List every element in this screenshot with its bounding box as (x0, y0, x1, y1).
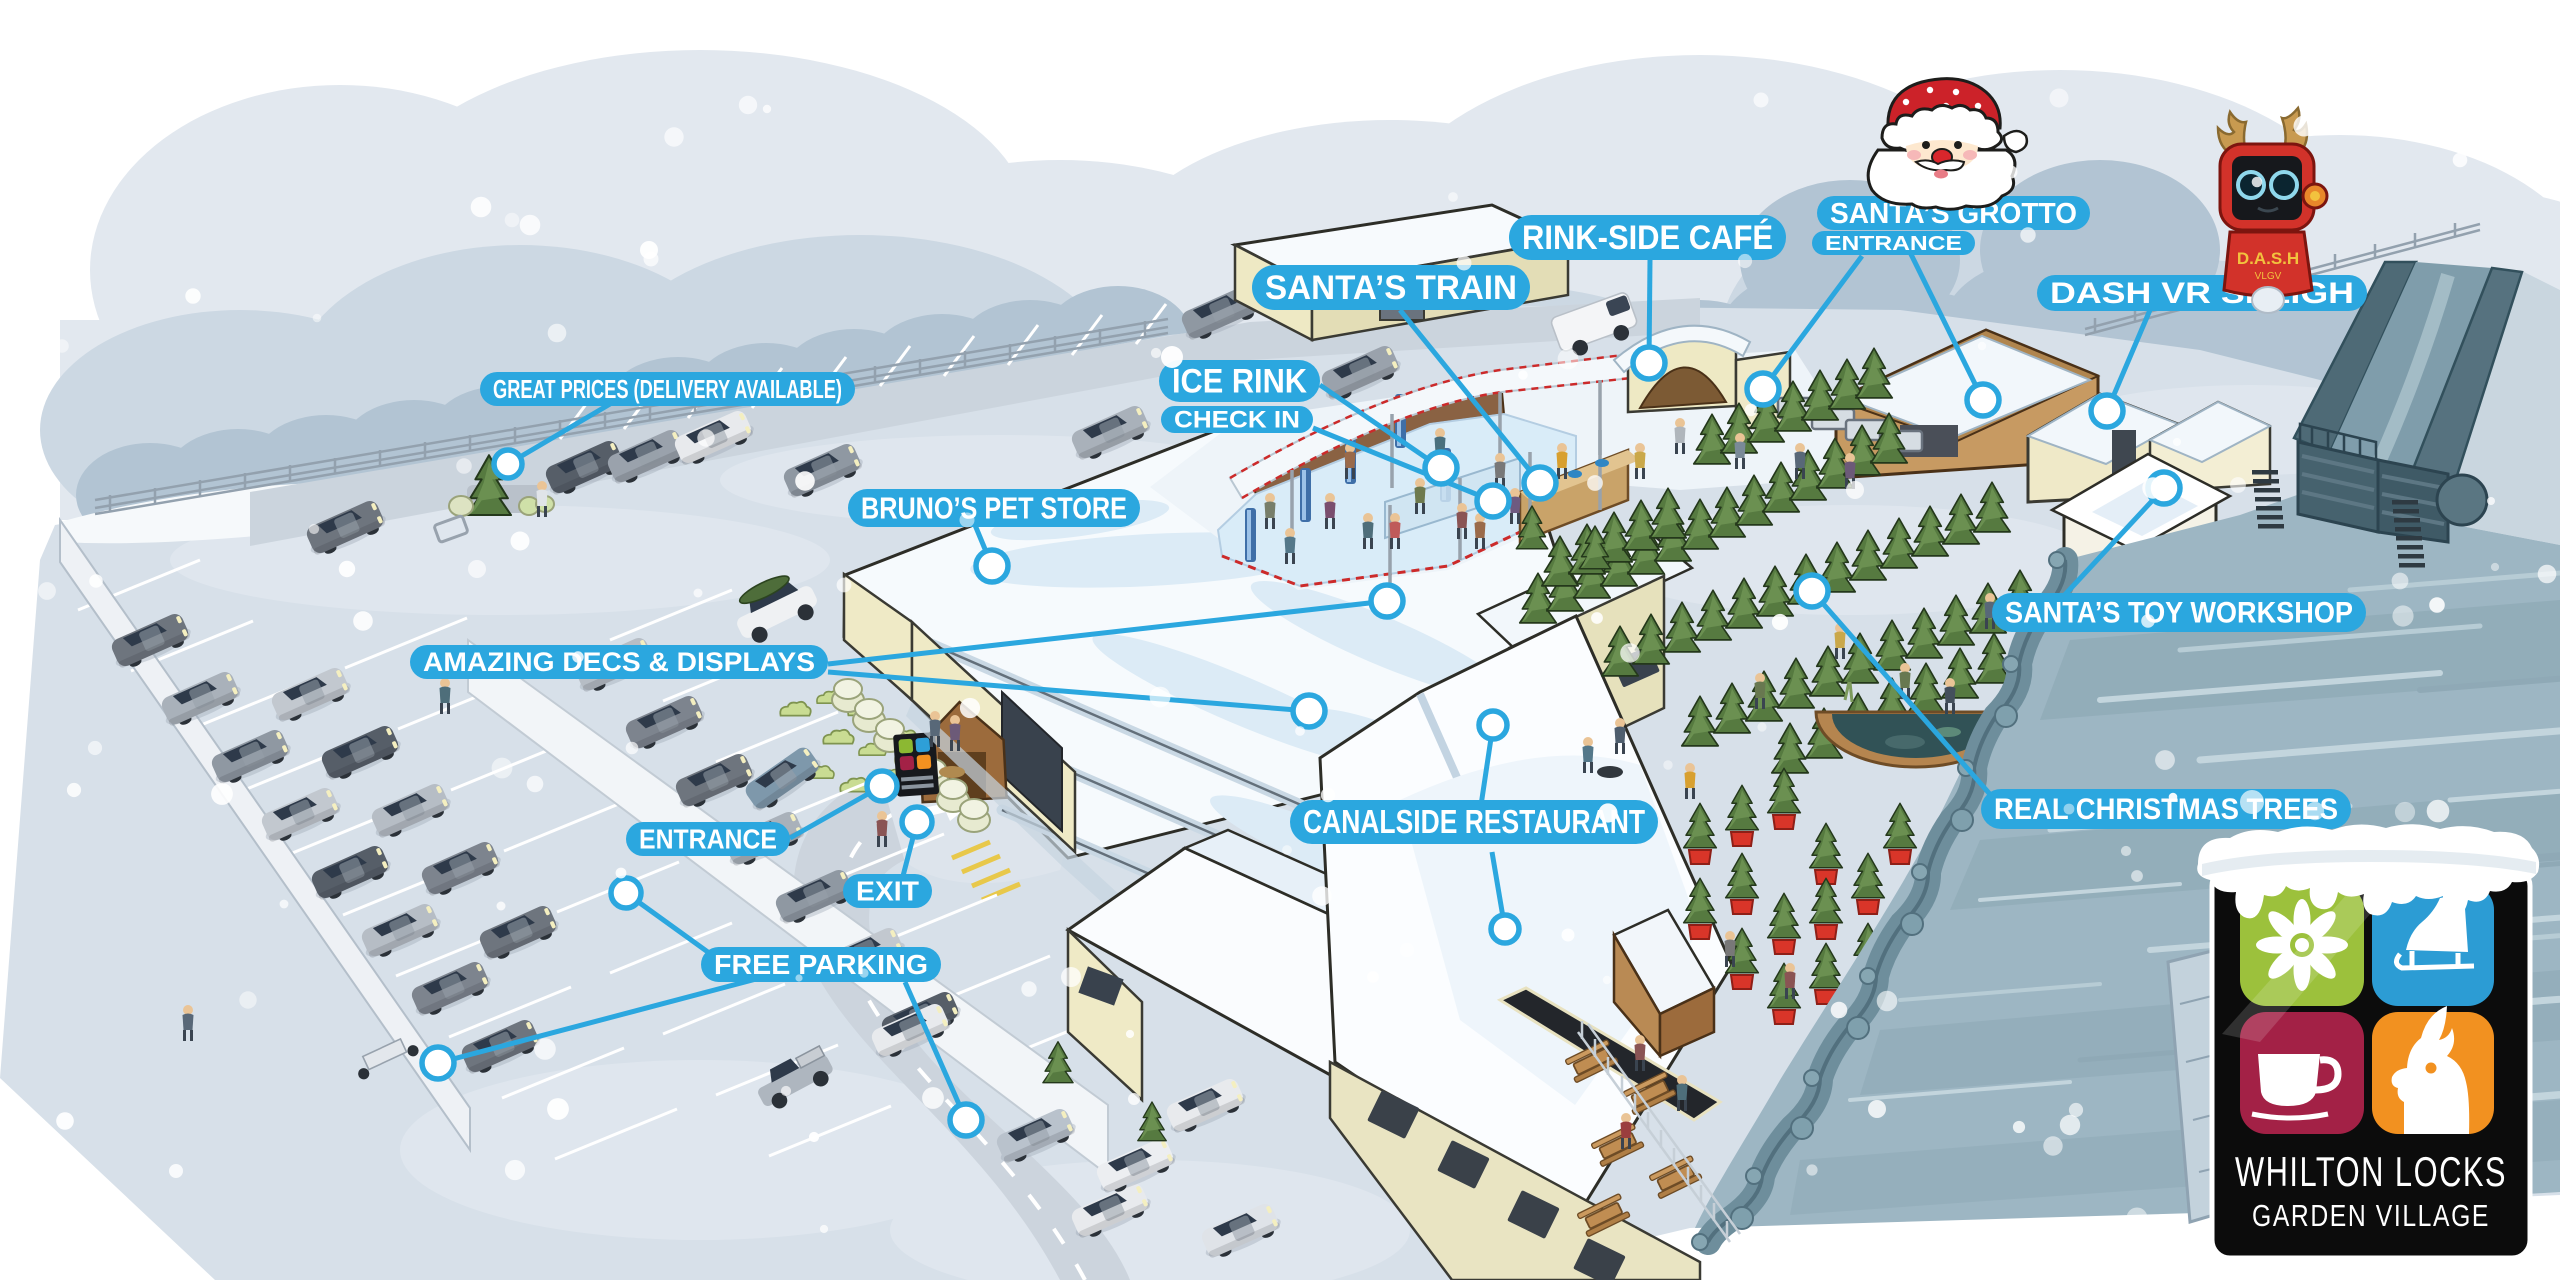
svg-text:BRUNO’S PET STORE: BRUNO’S PET STORE (861, 491, 1127, 526)
svg-text:D.A.S.H: D.A.S.H (2237, 249, 2299, 268)
svg-text:FREE PARKING: FREE PARKING (714, 949, 928, 980)
svg-text:GREAT PRICES (DELIVERY AVAILAB: GREAT PRICES (DELIVERY AVAILABLE) (493, 374, 842, 404)
svg-text:EXIT: EXIT (856, 876, 919, 907)
svg-text:ENTRANCE: ENTRANCE (1825, 233, 1962, 255)
svg-text:SANTA’S TOY WORKSHOP: SANTA’S TOY WORKSHOP (2005, 597, 2353, 630)
svg-text:AMAZING DECS & DISPLAYS: AMAZING DECS & DISPLAYS (423, 647, 815, 677)
svg-text:CHECK IN: CHECK IN (1174, 407, 1300, 434)
svg-text:ICE RINK: ICE RINK (1172, 363, 1307, 401)
svg-text:REAL CHRISTMAS TREES: REAL CHRISTMAS TREES (1994, 793, 2338, 826)
svg-text:CANALSIDE RESTAURANT: CANALSIDE RESTAURANT (1303, 803, 1645, 840)
svg-text:VLGV: VLGV (2255, 271, 2282, 282)
svg-text:ENTRANCE: ENTRANCE (639, 824, 777, 855)
svg-text:WHILTON LOCKS: WHILTON LOCKS (2235, 1148, 2507, 1195)
svg-text:SANTA’S TRAIN: SANTA’S TRAIN (1265, 269, 1517, 307)
svg-text:RINK-SIDE CAFÉ: RINK-SIDE CAFÉ (1522, 219, 1773, 257)
svg-text:GARDEN VILLAGE: GARDEN VILLAGE (2252, 1198, 2490, 1233)
